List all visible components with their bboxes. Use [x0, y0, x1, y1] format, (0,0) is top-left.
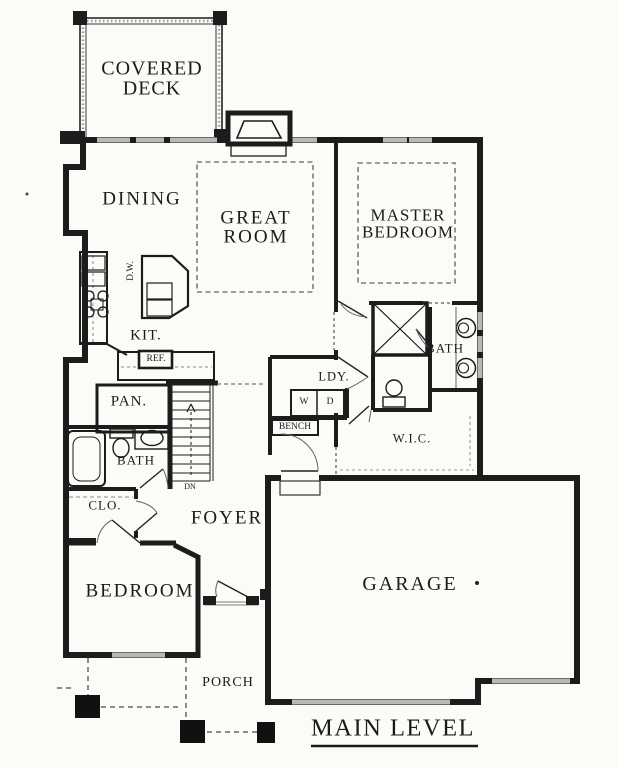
master-toilet — [383, 380, 405, 407]
label-dryer: D — [327, 398, 334, 408]
hall-sink — [135, 427, 168, 449]
room-label-walk-in-closet: W.I.C. — [393, 433, 432, 446]
room-label-bedroom: BEDROOM — [85, 581, 194, 600]
front-door — [203, 596, 259, 605]
room-label-master-bedroom: MASTER BEDROOM — [353, 207, 463, 242]
room-label-closet: CLO. — [88, 498, 121, 511]
room-label-pantry: PAN. — [111, 394, 147, 409]
room-label-garage: GARAGE — [362, 574, 457, 594]
room-label-laundry: LDY. — [318, 371, 349, 384]
label-bench: BENCH — [279, 423, 311, 433]
room-label-kitchen: KIT. — [130, 328, 162, 343]
room-label-master-bath: BATH — [426, 341, 464, 354]
page-title: MAIN LEVEL — [311, 716, 475, 741]
shower — [373, 303, 427, 355]
floor-plan-drawing — [0, 0, 617, 768]
fireplace — [228, 113, 290, 156]
label-dishwasher: D.W. — [127, 261, 137, 281]
room-label-dining: DINING — [102, 189, 182, 208]
label-washer: W — [300, 398, 309, 408]
porch-outline — [57, 658, 275, 743]
room-label-porch: PORCH — [202, 676, 254, 690]
room-label-foyer: FOYER — [191, 508, 263, 527]
room-label-covered-deck: COVERED DECK — [87, 59, 217, 100]
room-label-hall-bath: BATH — [117, 453, 155, 466]
stairs — [170, 385, 213, 489]
label-refrigerator: REF. — [146, 355, 165, 365]
floor-plan-page: COVERED DECK DINING GREAT ROOM MASTER BE… — [0, 0, 617, 768]
room-label-great-room: GREAT ROOM — [209, 209, 304, 248]
stray-marks — [26, 193, 29, 196]
bathtub — [68, 431, 105, 486]
kitchen-island — [142, 256, 188, 318]
label-stairs-down: DN — [184, 483, 196, 491]
